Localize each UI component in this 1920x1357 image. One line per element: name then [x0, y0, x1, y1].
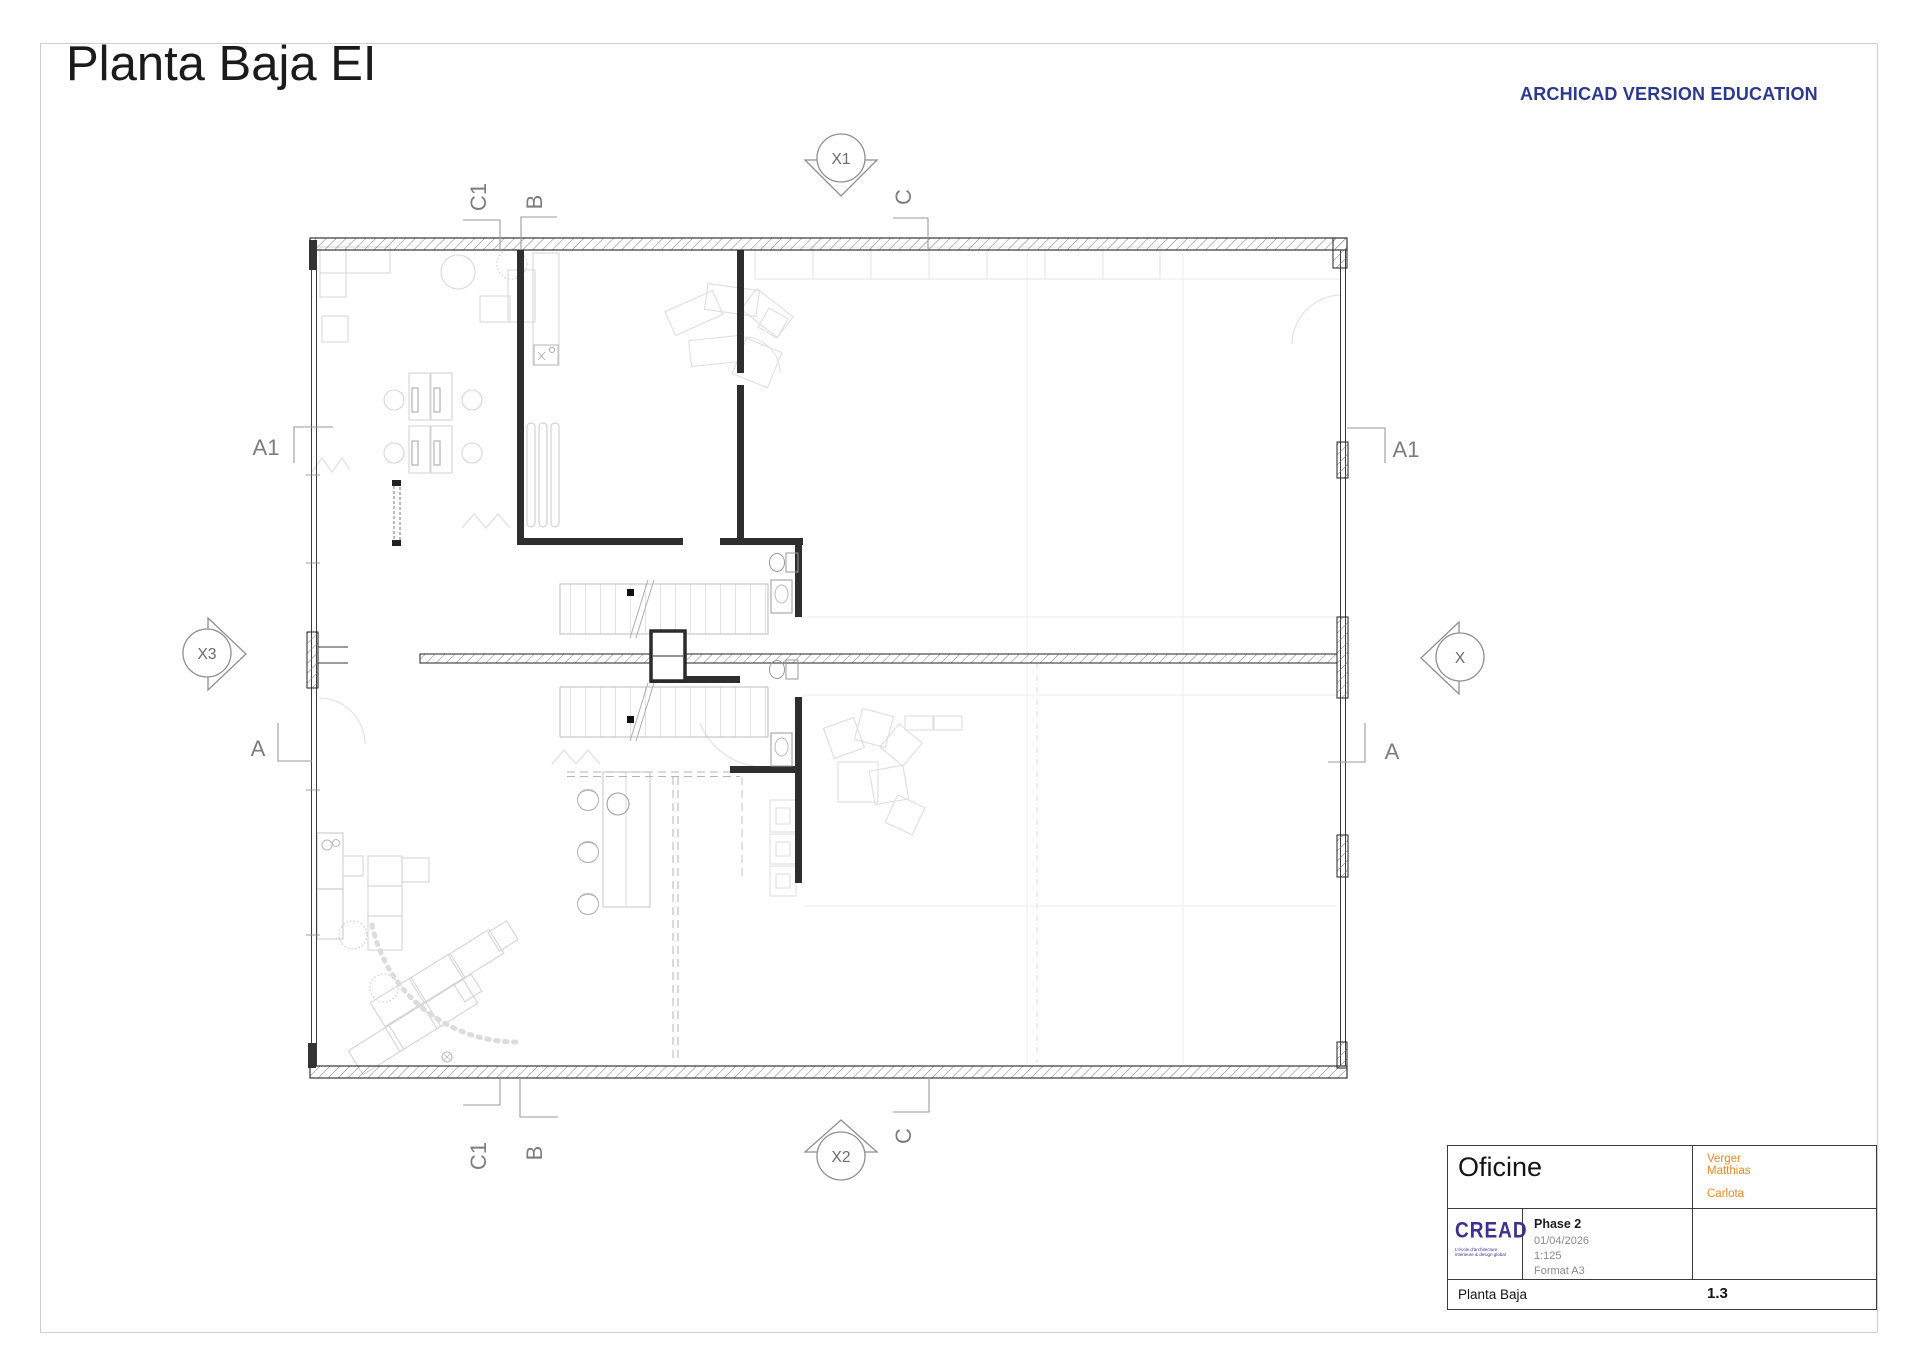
section-marker-x-right: X [1421, 622, 1484, 694]
elevation-label-c-top: C [891, 189, 916, 205]
radiator-bars [527, 423, 559, 527]
title-block-row-name: Planta Baja 1.3 [1448, 1280, 1876, 1309]
project-name: Oficine [1448, 1146, 1693, 1208]
elevation-label-b-top: B [522, 195, 547, 210]
section-marker-x3: X3 [183, 618, 246, 690]
stairs-lower [560, 683, 768, 741]
section-marker-x1: X1 [805, 134, 877, 196]
elevation-label-a1-left: A1 [253, 435, 280, 460]
cread-logo-text: CREAD [1455, 1219, 1522, 1244]
furniture-counter-stools [578, 772, 651, 915]
author-line-3: Carlota [1707, 1188, 1876, 1200]
furniture-counter-row-top [755, 247, 1160, 279]
elevation-brackets [278, 217, 1385, 1117]
furniture-desk-cluster-left [384, 373, 482, 473]
elevation-label-a-left: A [251, 736, 266, 761]
phase-label: Phase 2 [1534, 1217, 1692, 1231]
author-line-2: Matthias [1707, 1165, 1876, 1177]
elevation-label-c1-top: C1 [466, 183, 491, 211]
elevator-shaft [651, 631, 685, 681]
authors: Verger Matthias Carlota [1693, 1146, 1876, 1208]
drawing-sheet: Planta Baja EI ARCHICAD VERSION EDUCATIO… [0, 0, 1920, 1357]
elevation-label-c1-bottom: C1 [466, 1142, 491, 1170]
elevation-label-c-bottom: C [891, 1128, 916, 1144]
furniture-sofa-group-right [823, 708, 962, 835]
title-block-row-project: Oficine Verger Matthias Carlota [1448, 1146, 1876, 1209]
section-marker-x2-label: X2 [832, 1149, 851, 1166]
section-marker-x3-label: X3 [198, 646, 217, 663]
section-marker-x-right-label: X [1455, 650, 1466, 667]
furniture-kitchen-strip [770, 800, 796, 896]
furniture-bottom-left [317, 833, 518, 1075]
drawing-info: Phase 2 01/04/2026 1:125 Format A3 [1523, 1209, 1693, 1279]
drawing-number: 1.3 [1707, 1285, 1728, 1302]
cread-logo-tagline: L'école d'architecture intérieure & desi… [1455, 1247, 1522, 1257]
scale-label: 1:125 [1534, 1249, 1692, 1264]
elevation-label-a1-right: A1 [1393, 437, 1420, 462]
format-label: Format A3 [1534, 1264, 1692, 1279]
interior-walls [517, 250, 803, 883]
empty-cell [1693, 1209, 1876, 1279]
date-label: 01/04/2026 [1534, 1234, 1692, 1249]
title-block-row-info: CREAD L'école d'architecture intérieure … [1448, 1209, 1876, 1280]
partition-screen [392, 480, 401, 546]
author-line-1: Verger [1707, 1153, 1876, 1165]
title-block: Oficine Verger Matthias Carlota CREAD L'… [1447, 1145, 1877, 1310]
drawing-title: Planta Baja [1458, 1287, 1527, 1302]
cread-logo: CREAD L'école d'architecture intérieure … [1448, 1209, 1523, 1279]
zigzag-symbols [312, 458, 600, 764]
central-shear-wall [420, 654, 1337, 663]
elevation-label-b-bottom: B [522, 1146, 547, 1161]
section-marker-x2: X2 [805, 1120, 877, 1180]
furniture-sofa-group-top [665, 284, 793, 388]
elevation-label-a-right: A [1385, 739, 1400, 764]
door-swings [319, 295, 1340, 767]
section-marker-x1-label: X1 [832, 151, 851, 168]
